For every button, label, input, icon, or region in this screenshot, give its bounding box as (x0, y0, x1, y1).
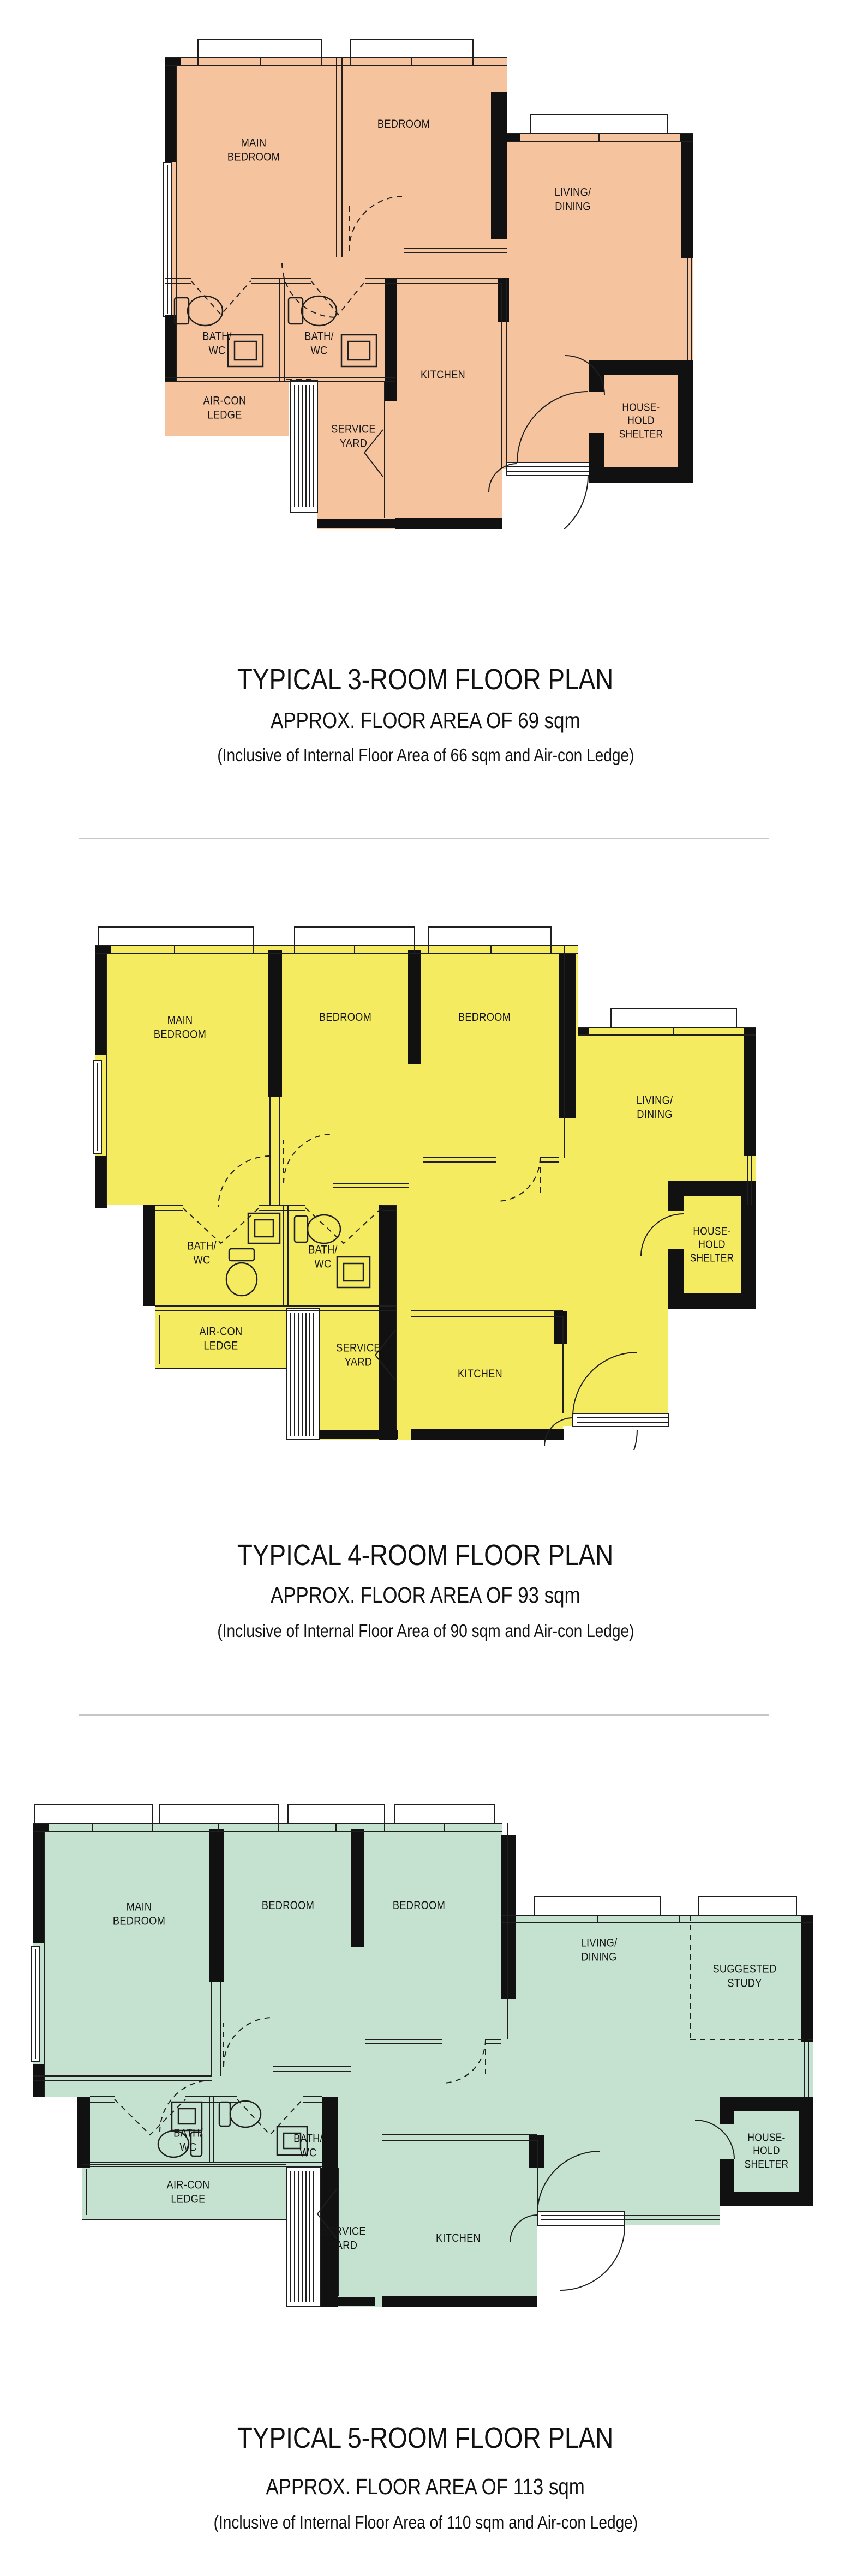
room-label-bedroom1-5room: BEDROOM (262, 1899, 314, 1913)
room-label-main-bedroom-3room: MAIN BEDROOM (227, 136, 280, 164)
room-label-service-yard-4room: SERVICE YARD (336, 1341, 381, 1369)
room-label-service-yard-3room: SERVICE YARD (331, 422, 376, 450)
plan-title-3room: TYPICAL 3-ROOM FLOOR PLAN (0, 663, 851, 696)
room-label-service-yard-5room: SERVICE YARD (321, 2224, 366, 2252)
room-label-living-dining-3room: LIVING/ DINING (555, 185, 591, 213)
room-label-suggested-study-5room: SUGGESTED STUDY (712, 1962, 776, 1990)
room-label-bath2-3room: BATH/ WC (304, 329, 334, 357)
room-label-household-shelter-5room: HOUSE- HOLD SHELTER (745, 2131, 789, 2171)
room-label-bedroom2-5room: BEDROOM (393, 1899, 445, 1913)
room-label-bath1-5room: BATH/ WC (173, 2126, 203, 2154)
room-label-main-bedroom-5room: MAIN BEDROOM (113, 1900, 165, 1928)
plan-area-4room: APPROX. FLOOR AREA OF 93 sqm (0, 1582, 851, 1608)
plan-title-5room: TYPICAL 5-ROOM FLOOR PLAN (0, 2421, 851, 2455)
room-label-bedroom1-4room: BEDROOM (319, 1010, 371, 1025)
room-label-aircon-ledge-5room: AIR-CON LEDGE (167, 2178, 210, 2206)
room-label-aircon-ledge-3room: AIR-CON LEDGE (203, 394, 247, 422)
plan-area-5room: APPROX. FLOOR AREA OF 113 sqm (0, 2474, 851, 2500)
plan-area-3room: APPROX. FLOOR AREA OF 69 sqm (0, 708, 851, 733)
room-label-living-dining-5room: LIVING/ DINING (581, 1936, 618, 1964)
plan-title-4room: TYPICAL 4-ROOM FLOOR PLAN (0, 1538, 851, 1572)
room-label-bath2-4room: BATH/ WC (308, 1243, 338, 1271)
room-label-kitchen-3room: KITCHEN (421, 368, 465, 382)
plan-inclusive-5room: (Inclusive of Internal Floor Area of 110… (0, 2512, 851, 2533)
room-label-kitchen-5room: KITCHEN (436, 2231, 481, 2246)
plan-inclusive-3room: (Inclusive of Internal Floor Area of 66 … (0, 745, 851, 766)
room-label-bedroom2-4room: BEDROOM (458, 1010, 511, 1025)
room-label-aircon-ledge-4room: AIR-CON LEDGE (200, 1325, 243, 1352)
room-label-bath1-3room: BATH/ WC (202, 329, 232, 357)
room-label-bedroom-3room: BEDROOM (377, 117, 430, 131)
floor-plan-3-room (147, 16, 709, 529)
section-divider (79, 838, 769, 839)
room-label-kitchen-4room: KITCHEN (458, 1367, 502, 1381)
floor-plan-5-room (16, 1783, 835, 2320)
room-label-main-bedroom-4room: MAIN BEDROOM (154, 1013, 206, 1041)
room-label-living-dining-4room: LIVING/ DINING (637, 1093, 673, 1121)
room-label-bath2-5room: BATH/ WC (293, 2132, 323, 2159)
floor-plan-page: MAIN BEDROOM BEDROOM LIVING/ DINING BATH… (0, 0, 851, 2576)
floor-fill-5room (33, 1823, 813, 2307)
room-label-bath1-4room: BATH/ WC (187, 1239, 217, 1267)
plan-inclusive-4room: (Inclusive of Internal Floor Area of 90 … (0, 1621, 851, 1641)
floor-plan-4-room (65, 900, 769, 1450)
section-divider (79, 1714, 769, 1716)
room-label-household-shelter-3room: HOUSE- HOLD SHELTER (619, 401, 663, 441)
room-label-household-shelter-4room: HOUSE- HOLD SHELTER (690, 1225, 734, 1265)
